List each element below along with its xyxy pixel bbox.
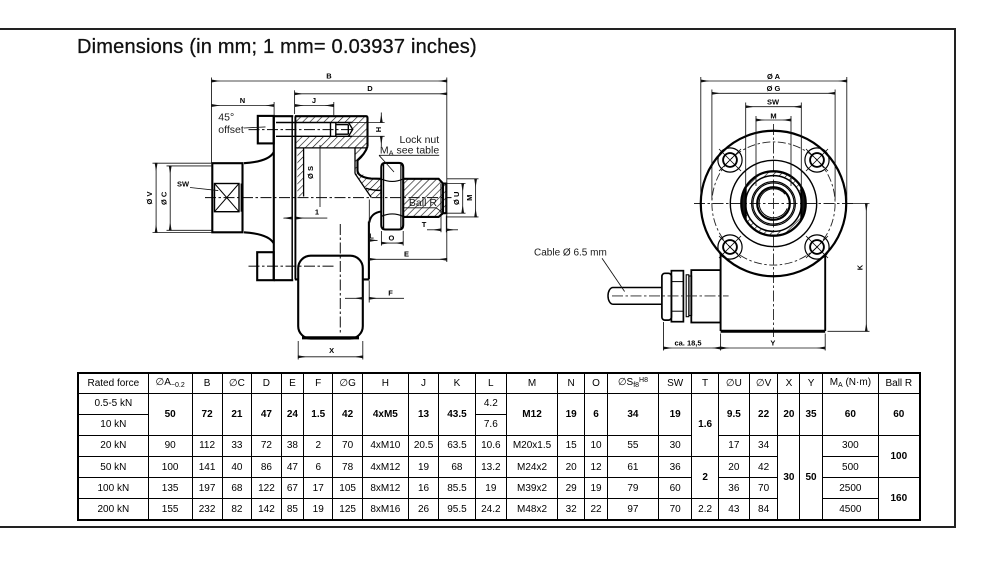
svg-text:Ø A: Ø A [767, 72, 781, 81]
svg-text:D: D [367, 84, 373, 93]
svg-text:Ø G: Ø G [767, 84, 781, 93]
svg-text:Ø S: Ø S [306, 166, 315, 179]
svg-text:Ø V: Ø V [145, 192, 154, 205]
svg-text:Ø C: Ø C [159, 191, 168, 205]
svg-text:O: O [388, 234, 394, 243]
svg-text:M: M [770, 111, 776, 120]
svg-text:J: J [312, 96, 316, 105]
svg-text:45°: 45° [218, 112, 234, 124]
svg-text:ca. 18,5: ca. 18,5 [674, 338, 701, 347]
svg-text:SW: SW [177, 180, 190, 189]
svg-text:T: T [422, 220, 427, 229]
svg-text:B: B [326, 71, 332, 80]
svg-text:K: K [855, 264, 864, 270]
svg-text:H: H [374, 127, 383, 132]
svg-text:1: 1 [315, 207, 319, 216]
svg-text:F: F [388, 288, 393, 297]
svg-text:Cable Ø 6.5 mm: Cable Ø 6.5 mm [534, 248, 607, 259]
svg-text:Ø U: Ø U [452, 192, 461, 205]
svg-text:L: L [369, 231, 374, 240]
svg-text:X: X [329, 346, 334, 355]
svg-text:Ball R: Ball R [409, 197, 437, 209]
svg-text:Y: Y [770, 338, 775, 347]
svg-text:MA see table: MA see table [380, 144, 439, 157]
svg-text:SW: SW [767, 98, 780, 107]
svg-text:offset: offset [218, 124, 244, 136]
svg-text:M: M [465, 195, 474, 201]
svg-text:E: E [404, 250, 409, 259]
svg-text:N: N [240, 96, 245, 105]
